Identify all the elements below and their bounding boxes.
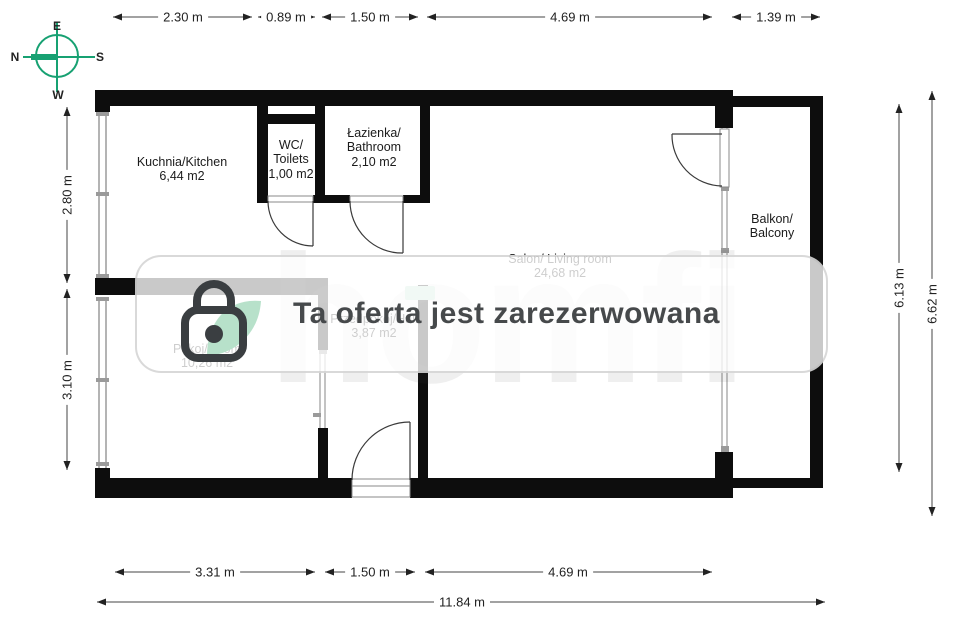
dim-right-2: 6.62 m [925, 279, 940, 329]
balcony-door [672, 129, 729, 187]
dim-total-width: 11.84 m [434, 595, 490, 610]
room-name-en: Bathroom [347, 140, 401, 154]
floor-plan-page: E N S W [0, 0, 963, 630]
dim-left-1: 2.80 m [60, 170, 75, 220]
compass-e: E [53, 19, 61, 33]
room-name-en: Toilets [268, 152, 313, 166]
room-name: Łazienka/ [347, 126, 401, 140]
dim-top-4: 4.69 m [545, 10, 595, 25]
entrance-door [352, 422, 410, 497]
dim-bottom-1: 3.31 m [190, 565, 240, 580]
room-area: 1,00 m2 [268, 167, 313, 181]
reserved-banner: Ta oferta jest zarezerwowana [135, 255, 828, 373]
room-label-balcony: Balkon/ Balcony [750, 212, 794, 241]
dim-bottom-3: 4.69 m [543, 565, 593, 580]
dim-top-2: 0.89 m [261, 10, 311, 25]
room-name: Balkon/ [750, 212, 794, 226]
dim-top-3: 1.50 m [345, 10, 395, 25]
room-name-en: Balcony [750, 226, 794, 240]
dim-top-1: 2.30 m [158, 10, 208, 25]
room-area: 6,44 m2 [137, 169, 227, 183]
room-name: Kuchnia/Kitchen [137, 155, 227, 169]
reserved-banner-text: Ta oferta jest zarezerwowana [293, 257, 720, 371]
room-area: 2,10 m2 [347, 155, 401, 169]
room-label-wc: WC/ Toilets 1,00 m2 [268, 138, 313, 181]
room-label-bathroom: Łazienka/ Bathroom 2,10 m2 [347, 126, 401, 169]
dim-left-2: 3.10 m [60, 355, 75, 405]
room-window [95, 297, 110, 468]
compass-w: W [52, 88, 64, 102]
dim-top-5: 1.39 m [751, 10, 801, 25]
kitchen-window [95, 112, 110, 278]
compass-s: S [96, 50, 104, 64]
room-name: WC/ [268, 138, 313, 152]
lock-icon [169, 268, 261, 364]
compass-icon: E N S W [11, 19, 104, 102]
dim-bottom-2: 1.50 m [345, 565, 395, 580]
compass-n: N [11, 50, 20, 64]
dim-right-1: 6.13 m [892, 263, 907, 313]
room-label-kitchen: Kuchnia/Kitchen 6,44 m2 [137, 155, 227, 184]
